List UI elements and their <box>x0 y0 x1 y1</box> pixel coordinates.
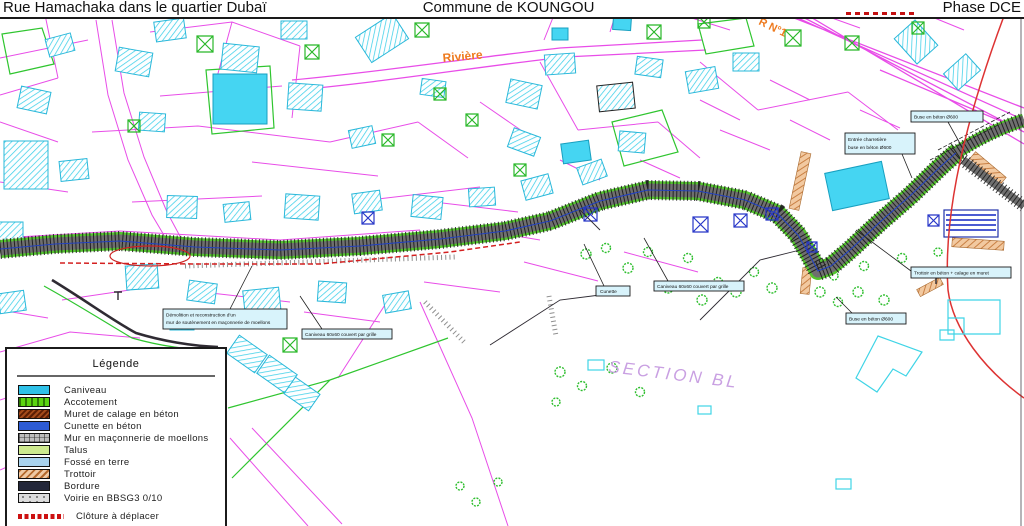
svg-text:buse en béton Ø600: buse en béton Ø600 <box>848 145 892 151</box>
legend-box: Légende Caniveau Accotement Muret de cal… <box>5 347 227 526</box>
legend-title: Légende <box>7 358 225 370</box>
annotation-callout: Caniveau 60x60 couvert par grille <box>644 238 744 291</box>
svg-text:mur de soutènement en maçonner: mur de soutènement en maçonnerie de moel… <box>166 320 271 326</box>
legend-item-voirie: Voirie en BBSG3 0/10 <box>18 492 225 504</box>
project-title: Rue Hamachaka dans le quartier Dubaï <box>3 0 266 16</box>
title-bar: Rue Hamachaka dans le quartier Dubaï Com… <box>0 0 1024 19</box>
legend-swatch-cloture <box>18 514 64 519</box>
legend-divider <box>17 375 215 377</box>
cad-plan-viewport: Rivière R N°1 SECTION BL Démolition et r… <box>0 0 1024 526</box>
svg-text:Buse en béton Ø600: Buse en béton Ø600 <box>914 115 958 121</box>
legend-swatch-trottoir <box>18 469 50 479</box>
legend-swatch-fosse <box>18 457 50 467</box>
svg-text:Caniveau 60x60 couvert par gri: Caniveau 60x60 couvert par grille <box>305 332 377 338</box>
svg-text:Cunette: Cunette <box>600 289 617 295</box>
culvert-box <box>944 210 998 237</box>
legend-item-trottoir: Trottoir <box>18 468 225 480</box>
legend-item-bordure: Bordure <box>18 480 225 492</box>
svg-text:Entrée charretière: Entrée charretière <box>848 137 887 143</box>
legend-swatch-talus <box>18 445 50 455</box>
legend-swatch-mur-moellons <box>18 433 50 443</box>
legend-item-mur-moellons: Mur en maçonnerie de moellons <box>18 432 225 444</box>
svg-text:Trottoir en béton + calage en: Trottoir en béton + calage en muret <box>914 271 990 277</box>
legend-swatch-caniveau <box>18 385 50 395</box>
legend-item-talus: Talus <box>18 444 225 456</box>
outline-buildings <box>588 300 1000 489</box>
legend-swatch-bordure <box>18 481 50 491</box>
legend-swatch-accotement <box>18 397 50 407</box>
legend-item-caniveau: Caniveau <box>18 384 225 396</box>
river-label: Rivière <box>442 48 483 65</box>
legend-item-fosse: Fossé en terre <box>18 456 225 468</box>
legend-item-cloture: Clôture à déplacer <box>18 511 225 522</box>
fence-dash-top <box>846 12 914 15</box>
svg-text:Démolition et reconstruction d: Démolition et reconstruction d'un <box>166 313 236 319</box>
rn1-label: R N°1 <box>757 16 789 40</box>
legend-swatch-voirie <box>18 493 50 503</box>
svg-text:Caniveau 60x60 couvert par gri: Caniveau 60x60 couvert par grille <box>657 284 729 290</box>
commune-title: Commune de KOUNGOU <box>423 0 595 16</box>
legend-item-cunette: Cunette en béton <box>18 420 225 432</box>
svg-text:Buse en béton Ø600: Buse en béton Ø600 <box>849 317 893 323</box>
legend-item-accotement: Accotement <box>18 396 225 408</box>
phase-title: Phase DCE <box>943 0 1021 16</box>
legend-swatch-cunette <box>18 421 50 431</box>
legend-swatch-muret <box>18 409 50 419</box>
annotation-callout: Buse en béton Ø600 <box>836 297 906 324</box>
legend-item-muret: Muret de calage en béton <box>18 408 225 420</box>
section-label: SECTION BL <box>608 357 740 392</box>
